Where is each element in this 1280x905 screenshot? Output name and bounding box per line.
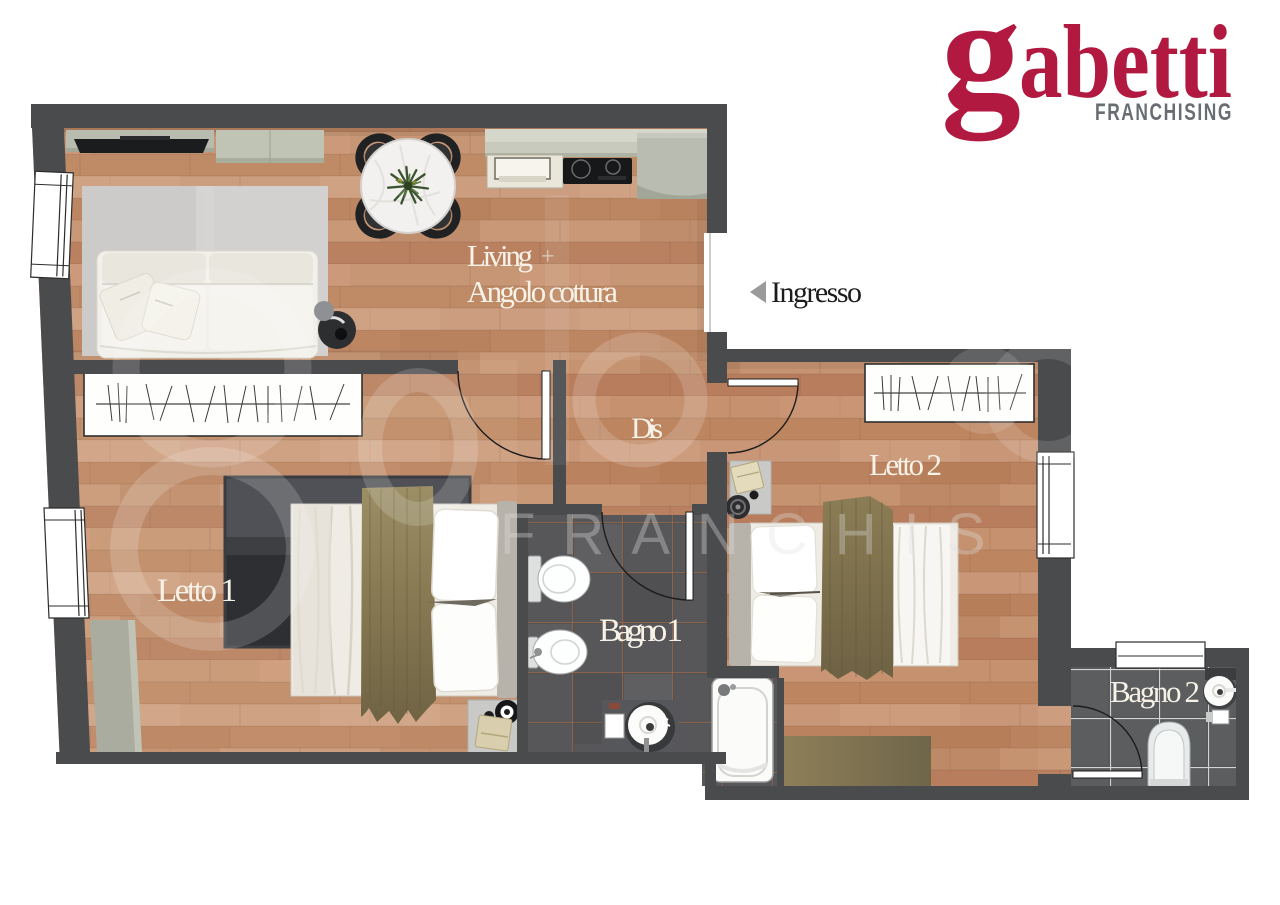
- svg-text:g: g: [941, 0, 1021, 142]
- svg-text:Living: Living: [467, 238, 533, 273]
- svg-text:FRANCHIS: FRANCHIS: [500, 502, 1012, 567]
- svg-text:Bagno 1: Bagno 1: [599, 613, 683, 649]
- svg-text:Dis: Dis: [631, 412, 663, 445]
- svg-text:Letto 1: Letto 1: [157, 573, 237, 609]
- svg-text:Angolo cottura: Angolo cottura: [467, 274, 618, 309]
- svg-text:Ingresso: Ingresso: [771, 276, 862, 309]
- svg-text:Bagno 2: Bagno 2: [1110, 674, 1200, 709]
- svg-text:FRANCHISING: FRANCHISING: [1095, 99, 1233, 126]
- svg-text:Letto 2: Letto 2: [869, 447, 942, 482]
